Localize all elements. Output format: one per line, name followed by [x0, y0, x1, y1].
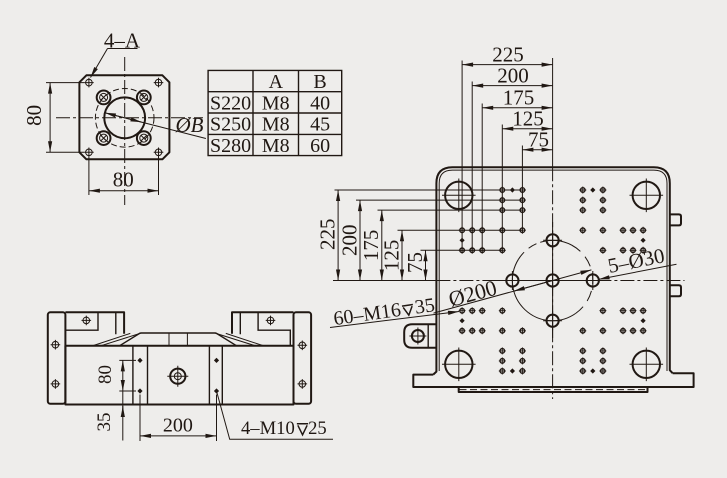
svg-text:225: 225 — [316, 219, 340, 251]
svg-text:B: B — [313, 71, 326, 93]
svg-text:40: 40 — [310, 92, 330, 114]
svg-text:35: 35 — [94, 413, 115, 432]
svg-text:M8: M8 — [262, 114, 290, 136]
svg-text:25: 25 — [308, 418, 327, 439]
svg-text:ØB: ØB — [175, 113, 204, 137]
svg-text:75: 75 — [403, 252, 427, 273]
svg-text:80: 80 — [95, 365, 116, 384]
svg-text:M8: M8 — [262, 135, 290, 157]
svg-text:200: 200 — [163, 415, 193, 437]
svg-text:80: 80 — [113, 168, 134, 192]
svg-text:4–M10: 4–M10 — [241, 418, 295, 439]
svg-text:125: 125 — [379, 240, 403, 272]
svg-text:S280: S280 — [210, 135, 251, 157]
svg-text:S250: S250 — [210, 114, 251, 136]
svg-text:200: 200 — [497, 63, 529, 87]
svg-text:M8: M8 — [262, 92, 290, 114]
svg-text:45: 45 — [310, 114, 330, 136]
svg-text:S220: S220 — [210, 92, 251, 114]
svg-text:75: 75 — [528, 127, 549, 151]
svg-text:200: 200 — [337, 225, 361, 256]
svg-text:60: 60 — [310, 135, 330, 157]
svg-text:A: A — [269, 71, 284, 93]
svg-text:80: 80 — [22, 105, 46, 126]
svg-text:35: 35 — [413, 294, 436, 319]
